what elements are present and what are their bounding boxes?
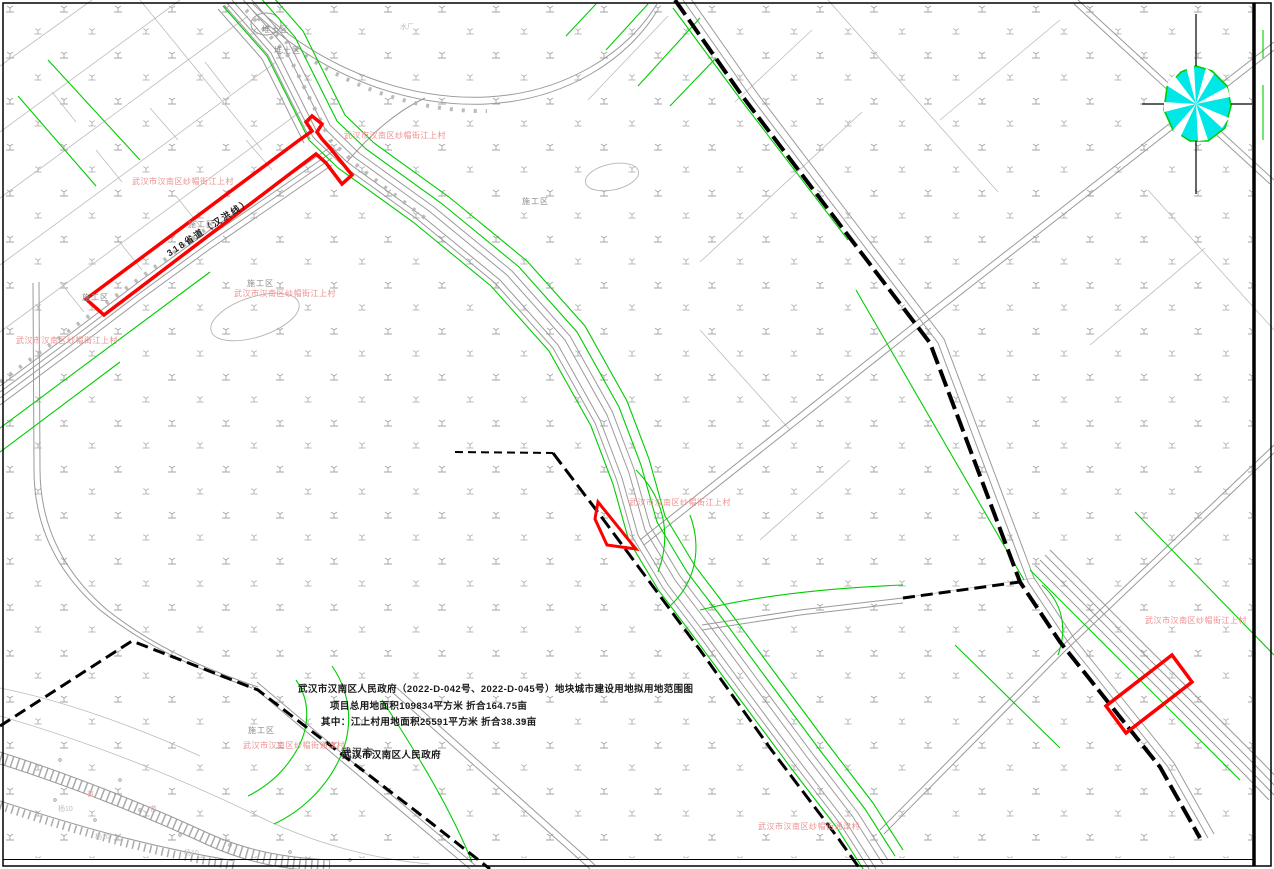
map-sheet: 318省道（汉洪线） 武汉市汉南区纱帽街江上村 武汉市汉南区纱帽街江上村 武汉市… (0, 0, 1274, 869)
map-canvas (0, 0, 1274, 869)
